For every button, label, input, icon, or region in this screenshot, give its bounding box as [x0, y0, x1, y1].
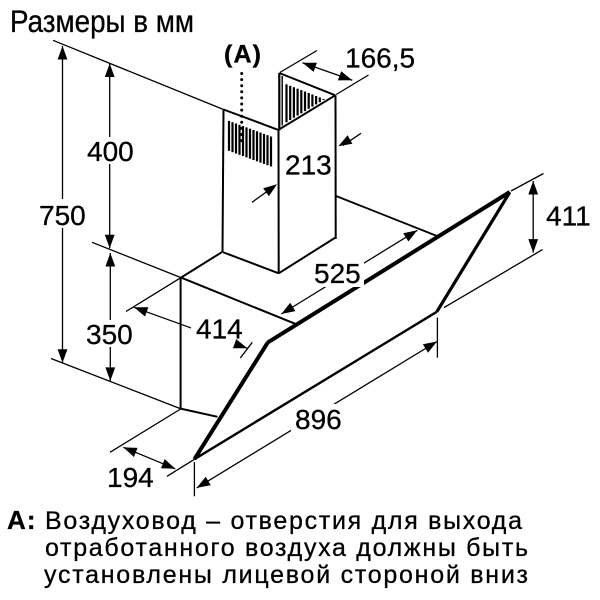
svg-text:750: 750	[39, 200, 86, 231]
svg-text:(A): (A)	[224, 41, 261, 69]
svg-text:414: 414	[196, 314, 243, 345]
svg-text:Воздуховод – отверстия для вых: Воздуховод – отверстия для выхода	[45, 507, 522, 535]
svg-text:525: 525	[314, 258, 361, 289]
svg-text:Размеры в мм: Размеры в мм	[10, 3, 194, 39]
svg-text:A:: A:	[7, 505, 36, 535]
svg-text:установлены лицевой стороной в: установлены лицевой стороной вниз	[44, 561, 528, 589]
svg-text:166,5: 166,5	[345, 43, 415, 74]
svg-text:411: 411	[546, 200, 591, 231]
svg-text:896: 896	[295, 404, 342, 435]
svg-text:400: 400	[87, 136, 134, 167]
svg-text:213: 213	[285, 150, 332, 181]
svg-text:350: 350	[86, 319, 133, 350]
svg-text:194: 194	[107, 462, 154, 493]
